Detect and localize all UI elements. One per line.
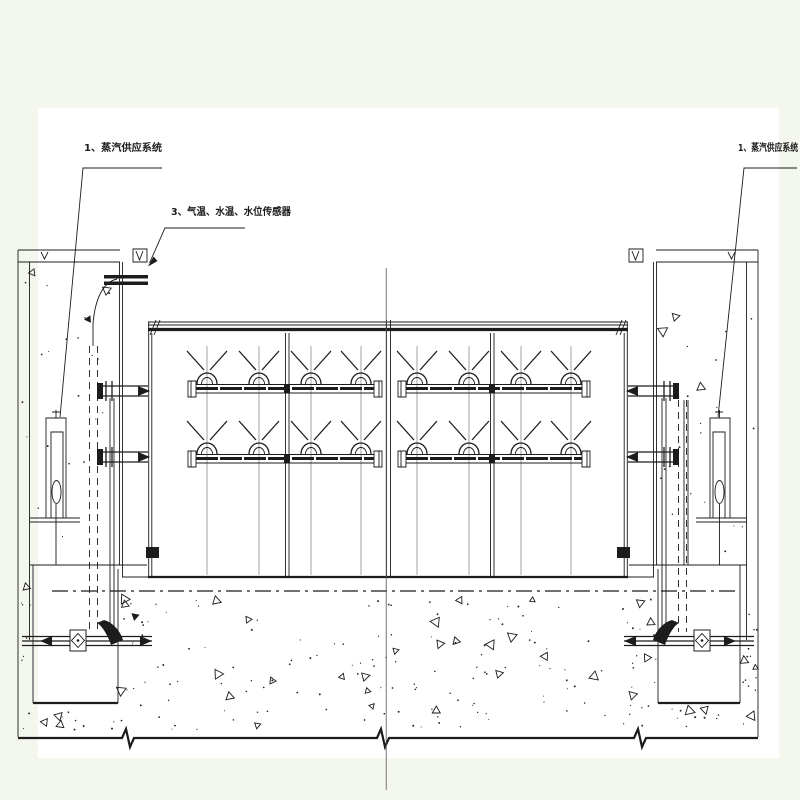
right-gate-bracket bbox=[617, 547, 630, 558]
callout-left-steam-system: 1、蒸汽供应系统 bbox=[84, 141, 162, 154]
drawing-page: 1、蒸汽供应系统 3、气温、水温、水位传感器 1、蒸汽供应系统 bbox=[0, 0, 800, 800]
left-gate-bracket bbox=[146, 547, 159, 558]
callout-right-steam-system: 1、蒸汽供应系统 bbox=[738, 141, 798, 154]
engineering-drawing: 1、蒸汽供应系统 3、气温、水温、水位传感器 1、蒸汽供应系统 bbox=[0, 0, 800, 800]
callout-sensors: 3、气温、水温、水位传感器 bbox=[171, 205, 292, 218]
